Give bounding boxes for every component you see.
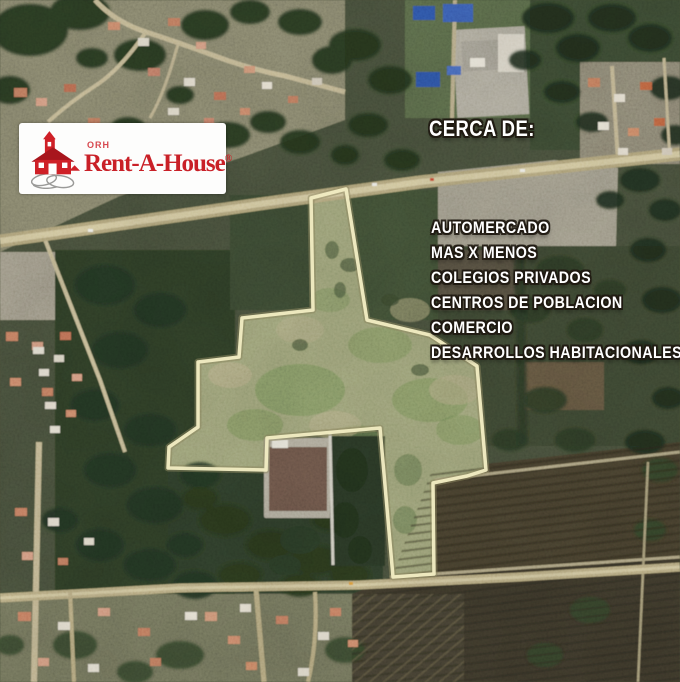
rent-a-house-logo: ORH Rent-A-House® [19, 123, 226, 194]
logo-brand-name: Rent-A-House® [84, 150, 232, 177]
nearby-item: COMERCIO [431, 315, 680, 340]
property-flyer: ORH Rent-A-House® CERCA DE: AUTOMERCADO … [0, 0, 680, 682]
nearby-item: MAS X MENOS [431, 240, 680, 265]
nearby-item: DESARROLLOS HABITACIONALES [431, 340, 680, 365]
nearby-item: AUTOMERCADO [431, 215, 680, 240]
logo-text: ORH Rent-A-House® [84, 141, 232, 176]
nearby-list: AUTOMERCADO MAS X MENOS COLEGIOS PRIVADO… [431, 215, 680, 365]
nearby-item: COLEGIOS PRIVADOS [431, 265, 680, 290]
logo-prefix: ORH [87, 141, 232, 150]
house-icon [26, 129, 80, 189]
nearby-item: CENTROS DE POBLACION [431, 290, 680, 315]
registered-mark: ® [225, 154, 232, 165]
nearby-heading: CERCA DE: [429, 116, 535, 142]
